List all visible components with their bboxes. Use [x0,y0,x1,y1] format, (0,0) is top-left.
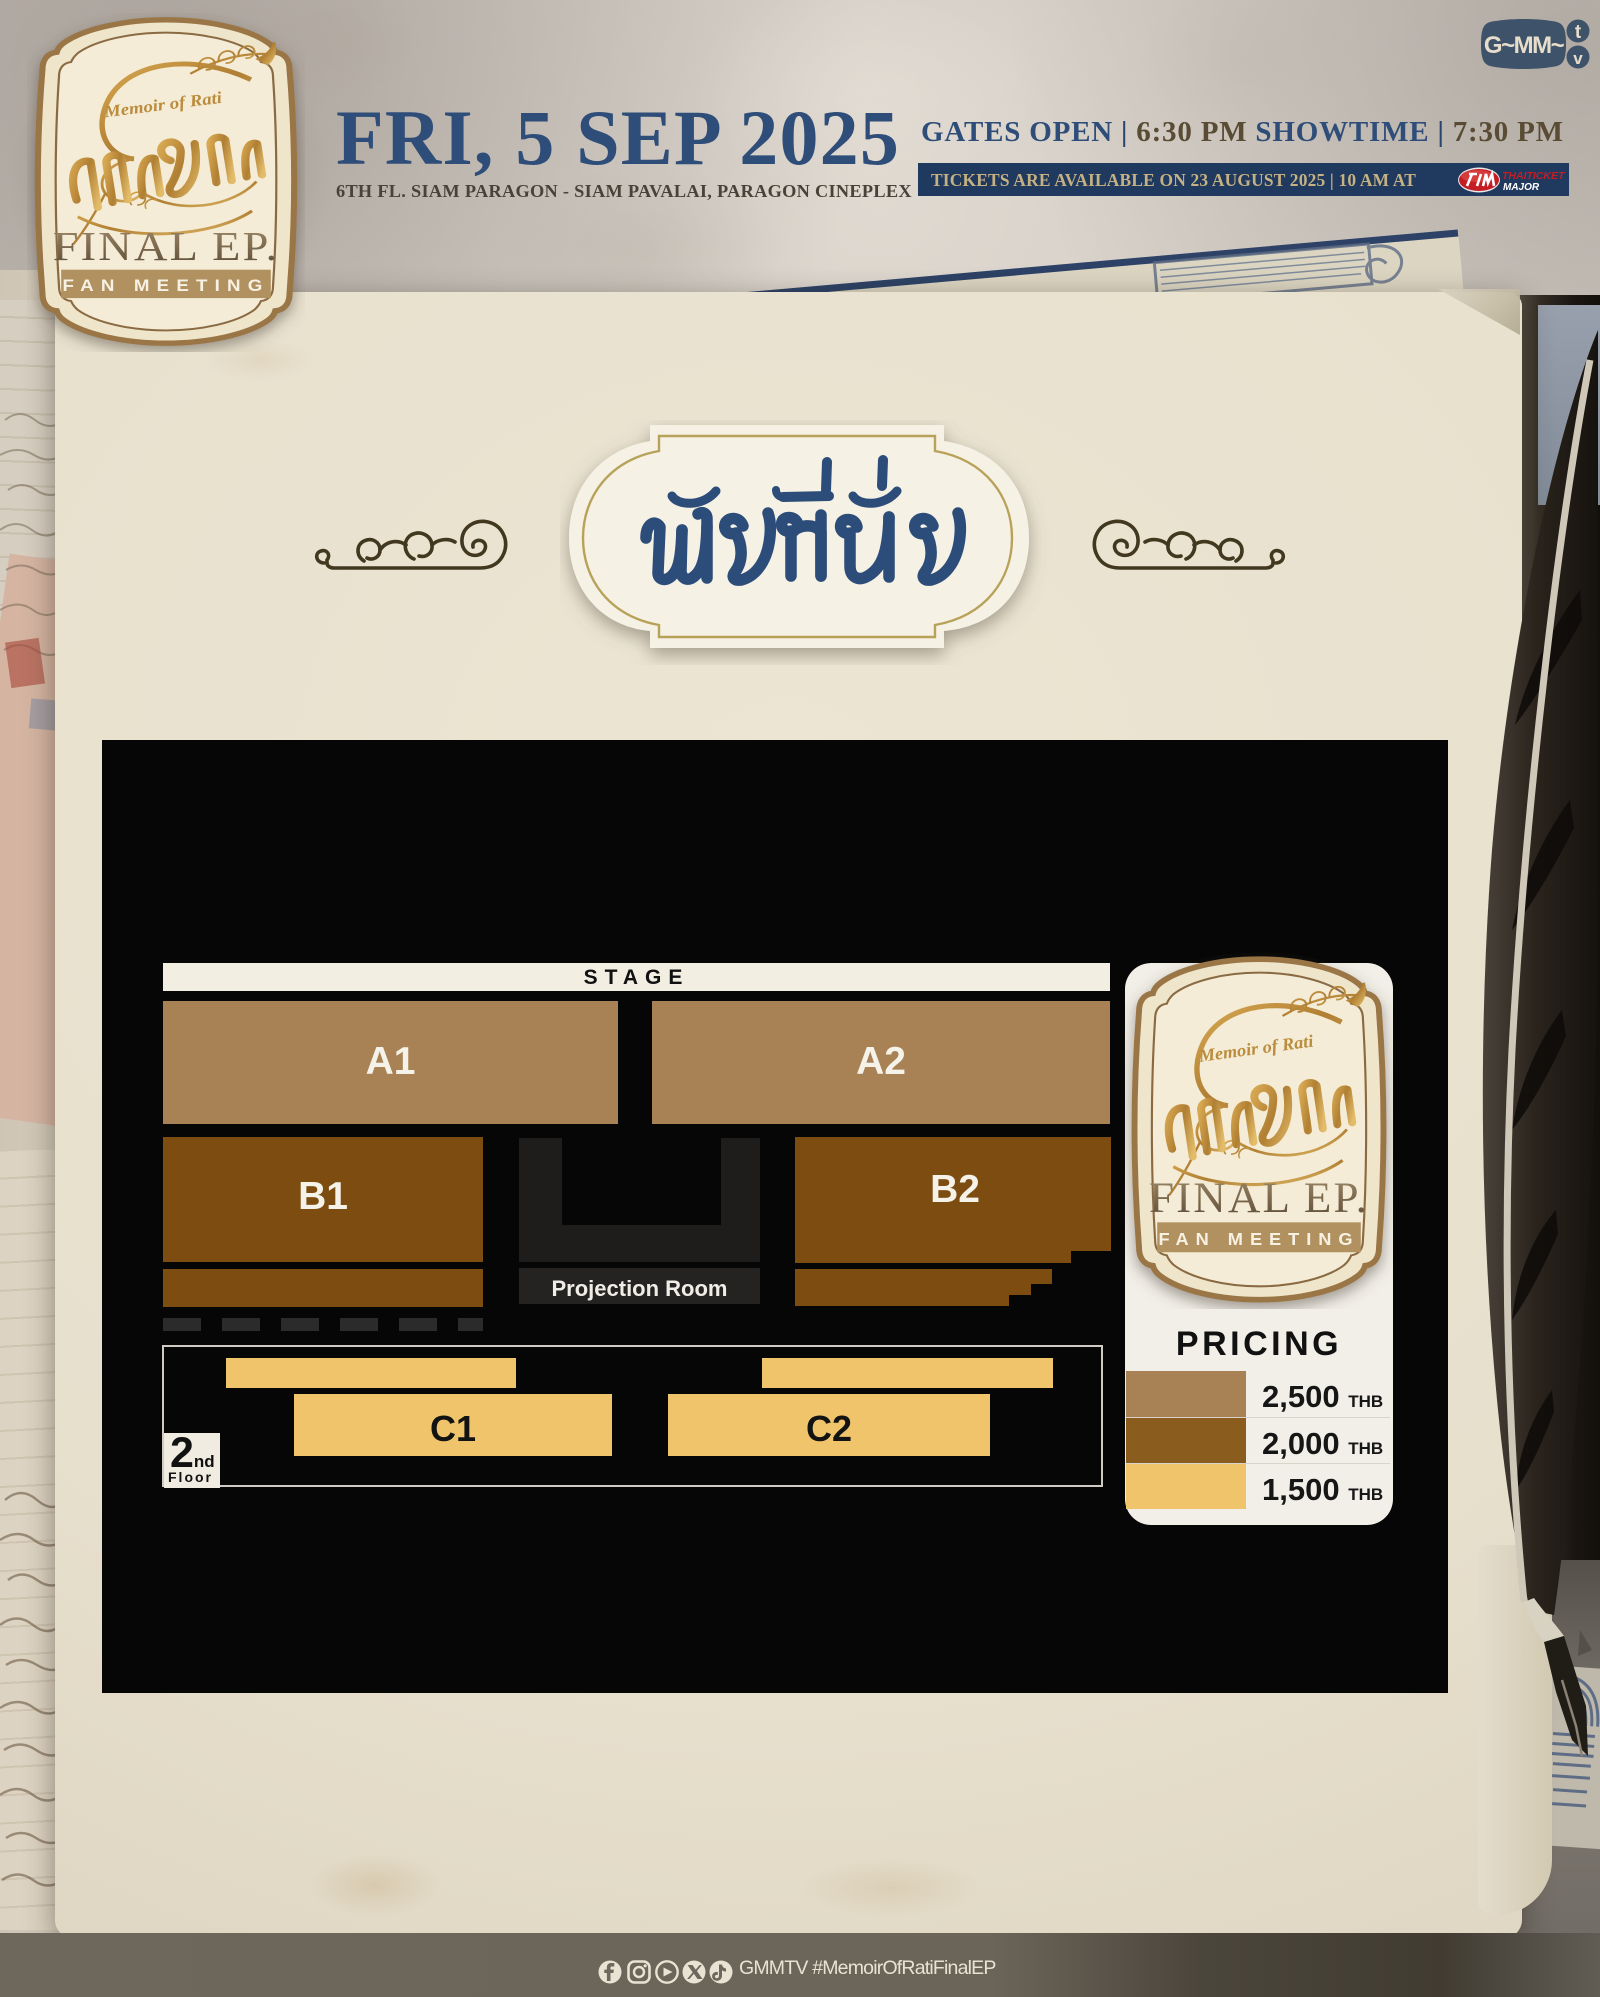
svg-text:MAJOR: MAJOR [1503,182,1540,193]
svg-text:G~MM~: G~MM~ [1484,32,1565,59]
svg-text:v: v [1573,49,1583,68]
svg-text:THAITICKET: THAITICKET [1502,170,1566,182]
svg-text:t: t [1575,22,1582,43]
